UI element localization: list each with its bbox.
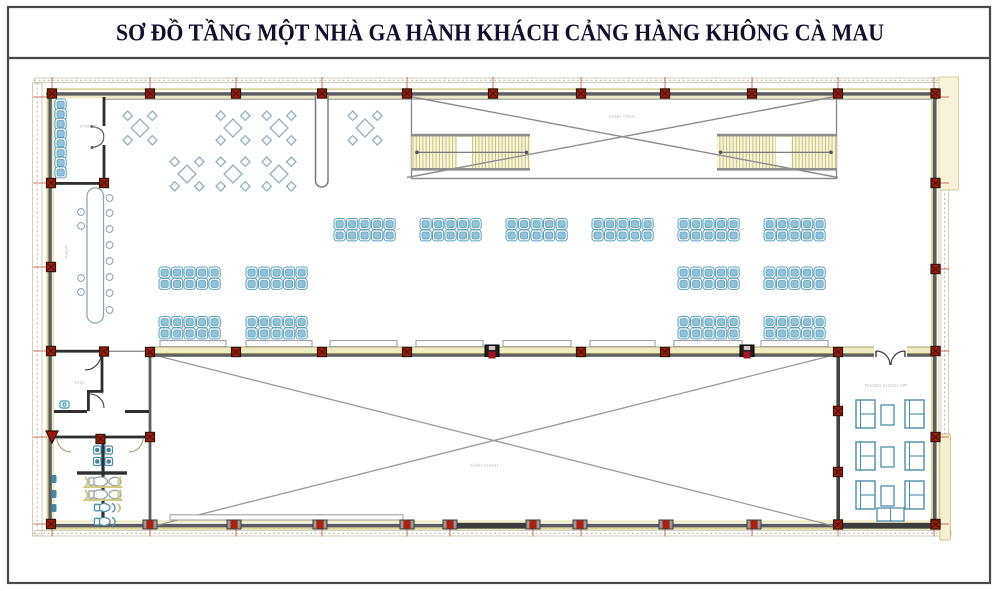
svg-text:PHÒNG KHÁCH VIP: PHÒNG KHÁCH VIP [865, 382, 907, 388]
svg-text:SƠ ĐỒ TẦNG MỘT NHÀ GA HÀNH KHÁ: SƠ ĐỒ TẦNG MỘT NHÀ GA HÀNH KHÁCH CẢNG HÀ… [116, 18, 884, 47]
svg-text:P.HỌP: P.HỌP [64, 245, 69, 258]
svg-text:KHO: KHO [75, 380, 85, 385]
svg-text:SẢNH CHÍNH: SẢNH CHÍNH [470, 462, 498, 468]
svg-text:SẢNH TẦNG: SẢNH TẦNG [609, 113, 636, 119]
svg-text:P.TRỰC: P.TRỰC [80, 124, 98, 129]
